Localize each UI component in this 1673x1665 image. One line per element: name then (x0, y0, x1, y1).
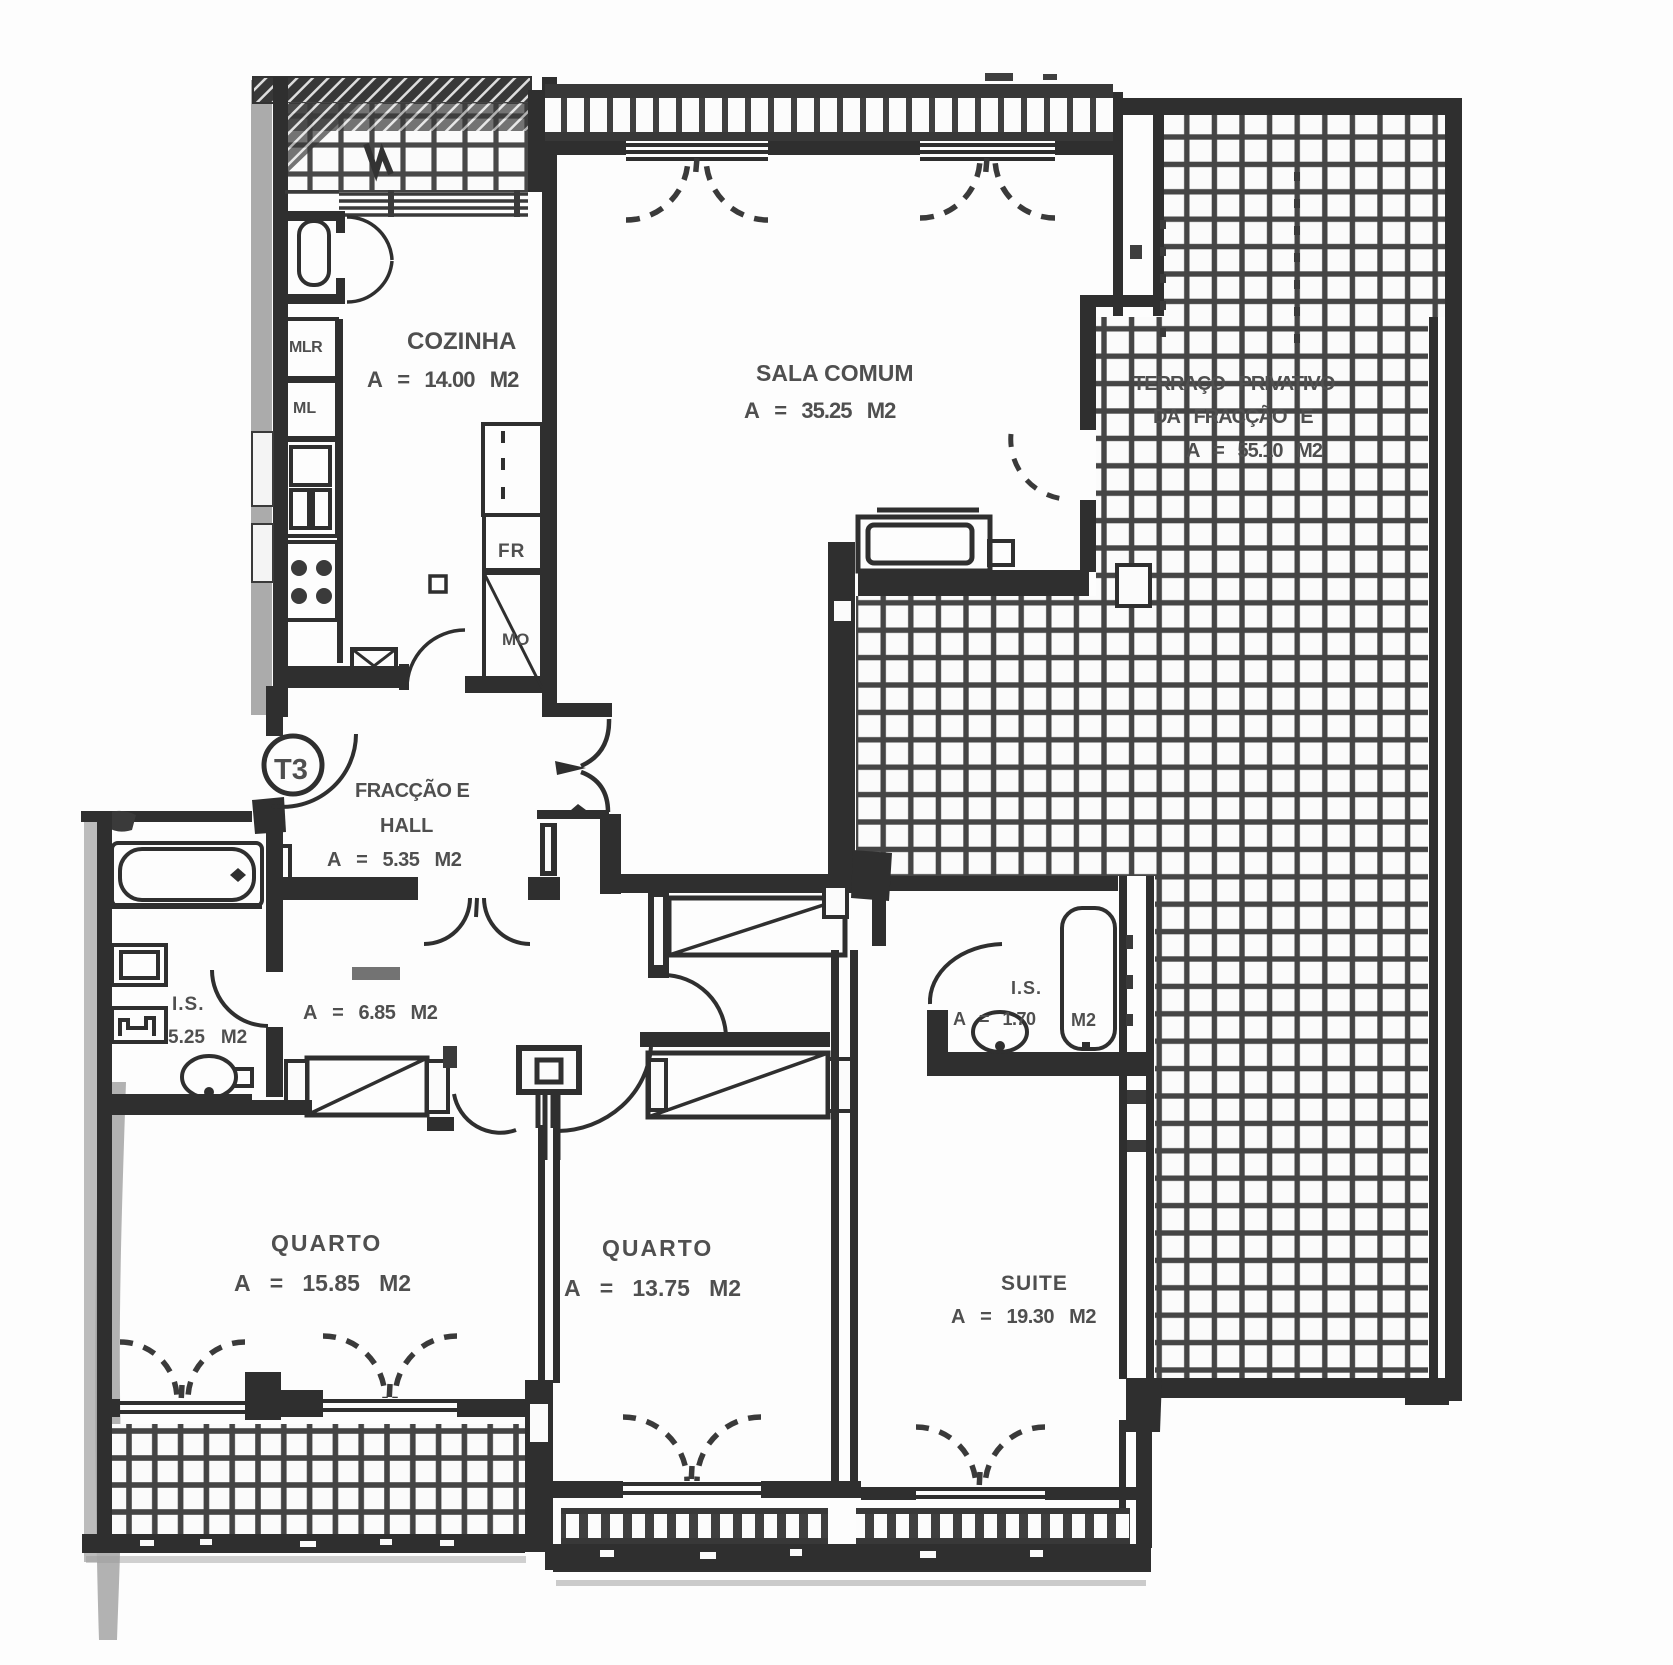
svg-text:A = 35.25 M2: A = 35.25 M2 (744, 398, 896, 423)
svg-text:5.25 M2: 5.25 M2 (168, 1027, 247, 1048)
svg-text:MO: MO (502, 630, 529, 649)
svg-text:A = 6.85 M2: A = 6.85 M2 (303, 1002, 438, 1024)
svg-text:A = 1.70: A = 1.70 (953, 1009, 1036, 1029)
svg-text:QUARTO: QUARTO (271, 1230, 382, 1256)
svg-text:TERRAÇO PRIVATIVO: TERRAÇO PRIVATIVO (1133, 373, 1335, 395)
svg-text:A = 5.35 M2: A = 5.35 M2 (327, 849, 462, 871)
svg-text:A = 15.85 M2: A = 15.85 M2 (234, 1270, 411, 1296)
svg-text:SALA COMUM: SALA COMUM (756, 360, 914, 386)
svg-text:I.S.: I.S. (1011, 978, 1042, 998)
svg-text:SUITE: SUITE (1001, 1272, 1068, 1295)
svg-text:ML: ML (293, 400, 316, 417)
svg-text:HALL: HALL (380, 815, 433, 837)
svg-text:M2: M2 (1071, 1010, 1096, 1030)
svg-text:A = 13.75 M2: A = 13.75 M2 (564, 1275, 741, 1301)
svg-text:FR: FR (498, 541, 525, 562)
svg-text:A = 14.00 M2: A = 14.00 M2 (367, 367, 519, 392)
svg-text:T3: T3 (274, 754, 308, 786)
svg-text:FRACÇÃO E: FRACÇÃO E (355, 779, 470, 802)
svg-text:A = 55.10 M2: A = 55.10 M2 (1186, 440, 1323, 462)
svg-text:A = 19.30 M2: A = 19.30 M2 (951, 1306, 1096, 1328)
svg-text:DA FRACÇÃO E: DA FRACÇÃO E (1153, 405, 1313, 428)
svg-text:MLR: MLR (289, 339, 323, 356)
svg-text:COZINHA: COZINHA (407, 328, 516, 355)
svg-text:I.S.: I.S. (172, 994, 205, 1015)
svg-text:QUARTO: QUARTO (602, 1235, 713, 1261)
